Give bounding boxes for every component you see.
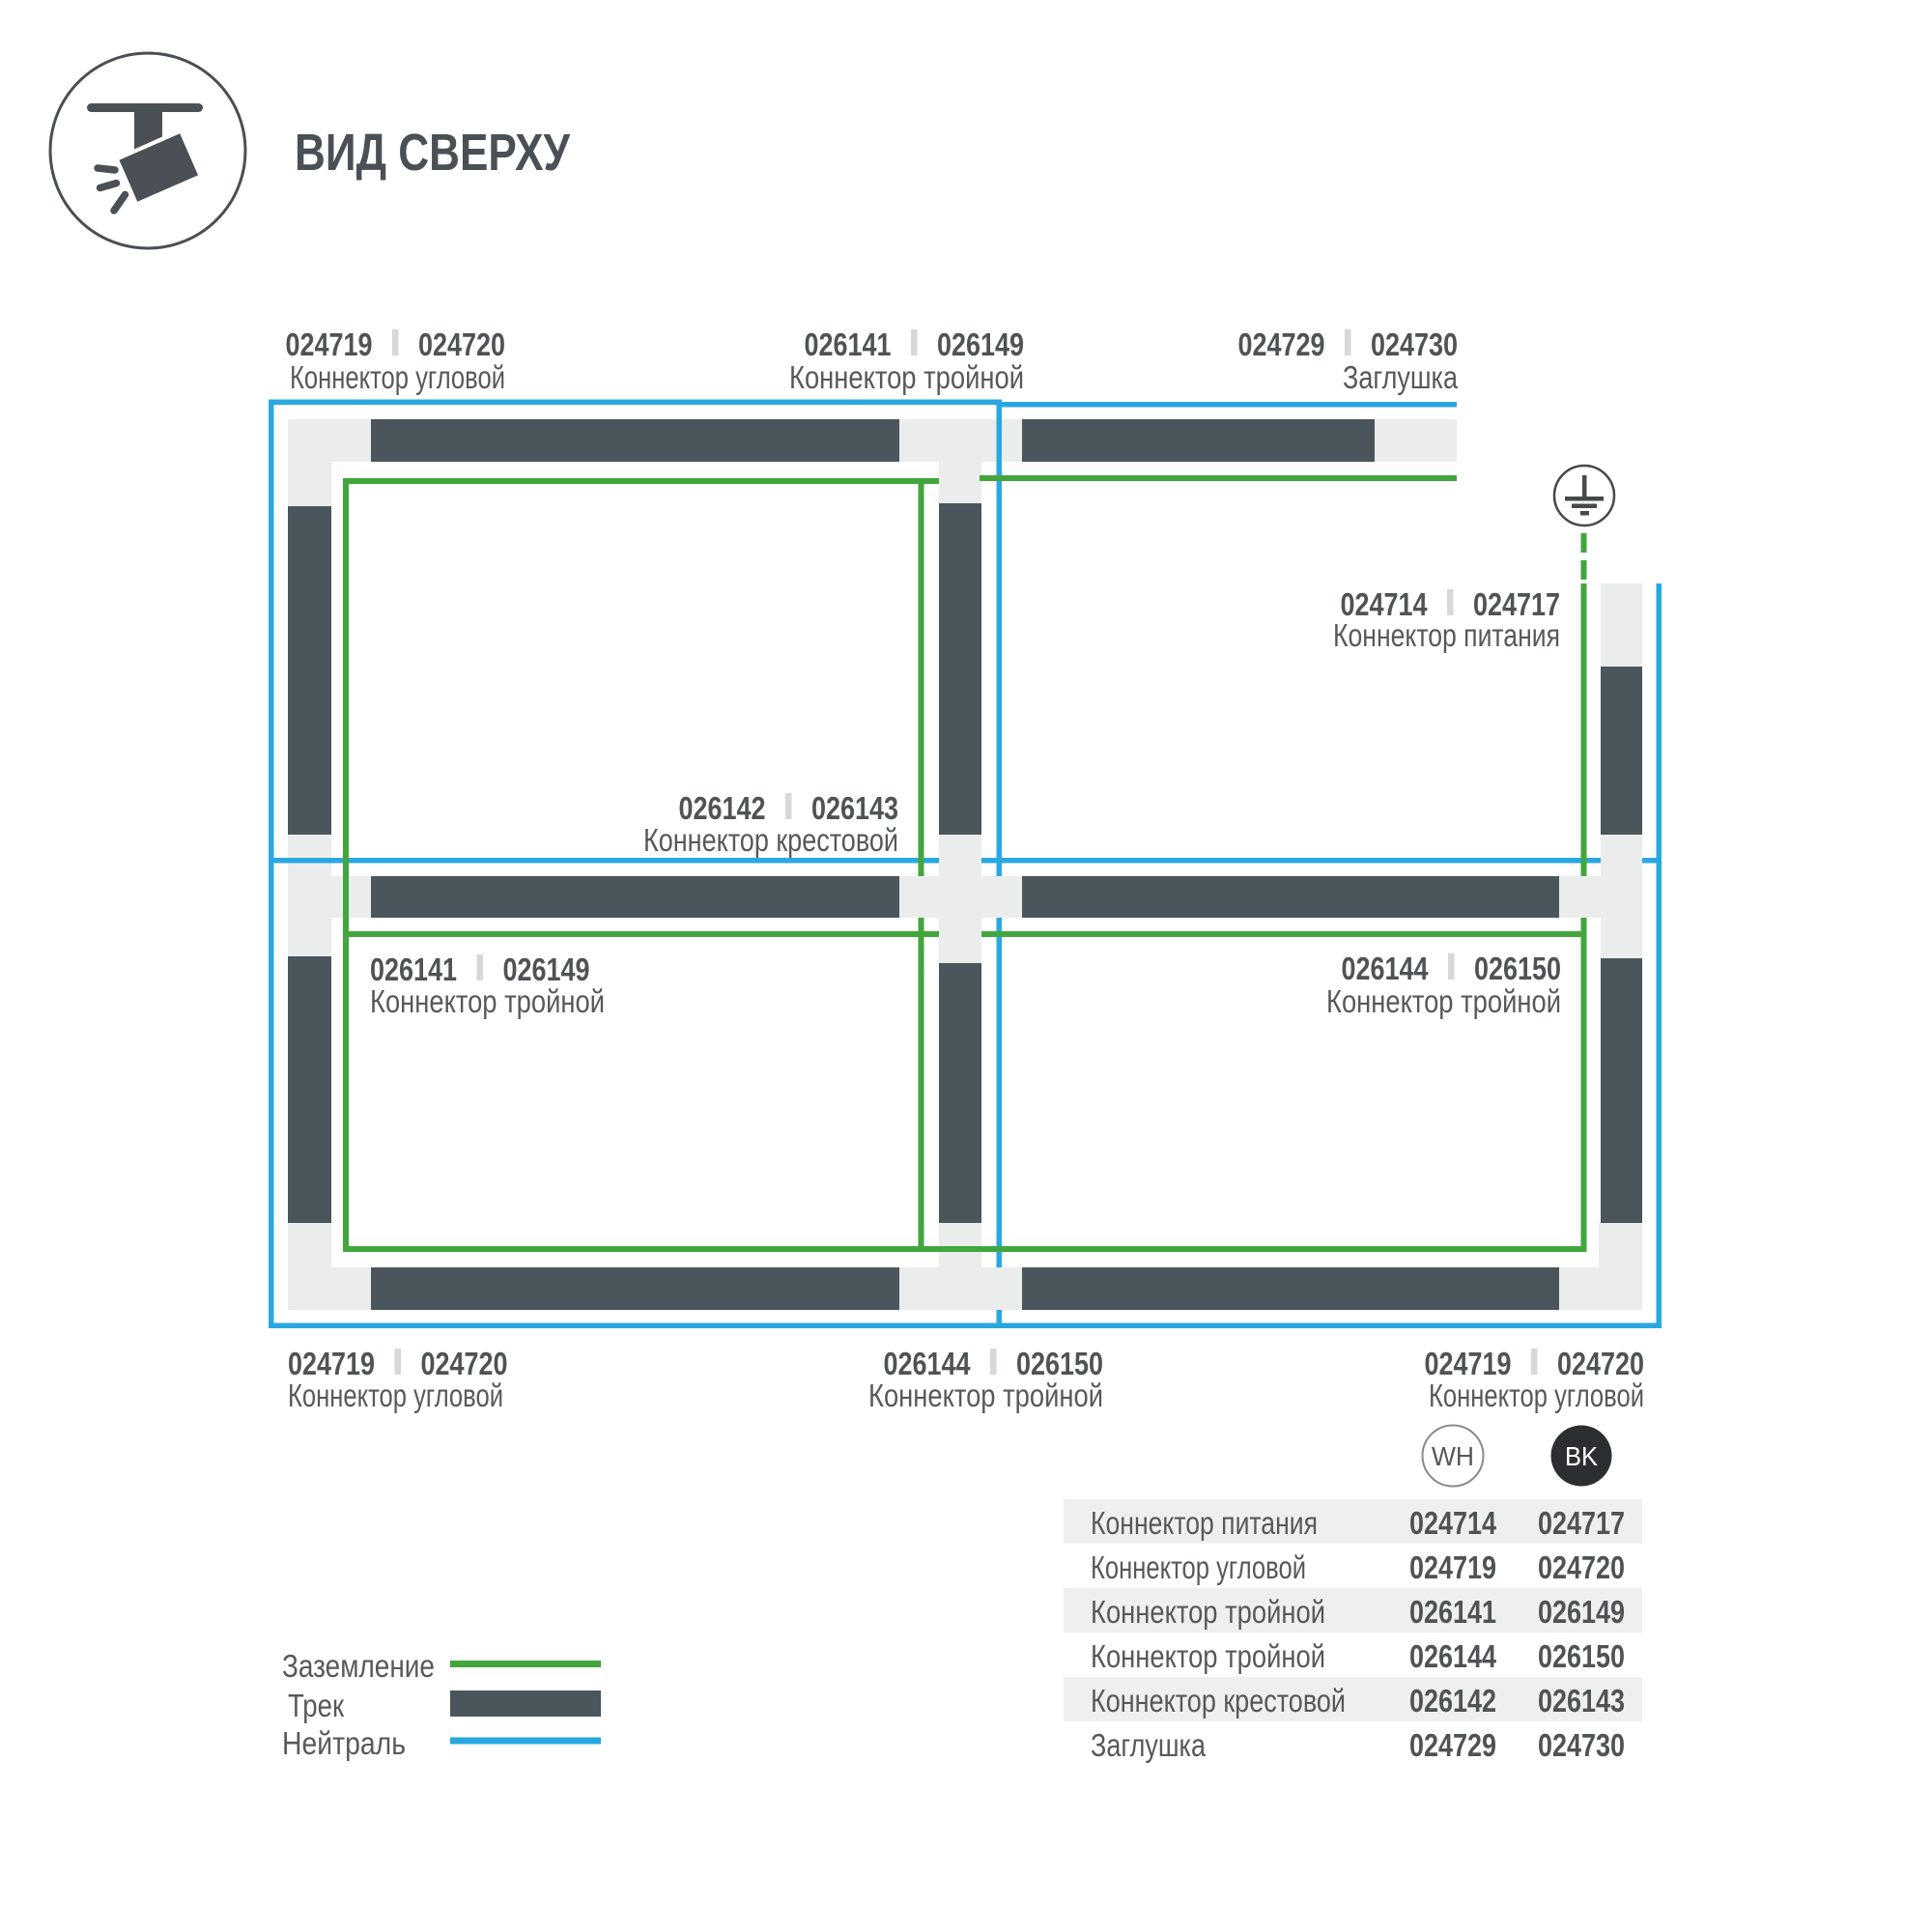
svg-text:024730: 024730 [1538, 1727, 1625, 1763]
svg-text:Коннектор угловой: Коннектор угловой [1429, 1378, 1644, 1413]
svg-text:026144: 026144 [1409, 1638, 1497, 1674]
svg-text:Коннектор тройной: Коннектор тройной [370, 983, 605, 1019]
svg-text:024720: 024720 [1538, 1549, 1625, 1585]
svg-text:Коннектор тройной: Коннектор тройной [1091, 1594, 1325, 1630]
svg-text:024719: 024719 [288, 1346, 375, 1381]
svg-text:Коннектор тройной: Коннектор тройной [1091, 1638, 1325, 1674]
svg-text:024720: 024720 [421, 1346, 508, 1381]
svg-text:026150: 026150 [1538, 1638, 1625, 1674]
svg-text:Коннектор крестовой: Коннектор крестовой [1091, 1683, 1346, 1719]
svg-text:Коннектор тройной: Коннектор тройной [1326, 983, 1561, 1019]
svg-text:026149: 026149 [503, 952, 590, 987]
svg-text:026150: 026150 [1016, 1346, 1103, 1381]
svg-text:024719: 024719 [286, 327, 373, 362]
svg-text:026142: 026142 [1409, 1683, 1496, 1719]
svg-text:026144: 026144 [1342, 951, 1430, 986]
svg-text:Коннектор питания: Коннектор питания [1333, 617, 1560, 653]
svg-text:026150: 026150 [1474, 951, 1561, 986]
svg-text:Коннектор тройной: Коннектор тройной [868, 1378, 1103, 1413]
svg-text:Коннектор угловой: Коннектор угловой [1091, 1549, 1306, 1585]
svg-text:Нейтраль: Нейтраль [282, 1725, 406, 1761]
svg-text:Трек: Трек [288, 1688, 344, 1723]
svg-text:026141: 026141 [370, 952, 457, 987]
svg-text:WH: WH [1432, 1441, 1474, 1471]
svg-text:024730: 024730 [1371, 327, 1458, 362]
svg-text:026143: 026143 [811, 790, 898, 826]
svg-text:026141: 026141 [805, 327, 892, 362]
svg-text:024720: 024720 [1557, 1346, 1644, 1381]
svg-text:024714: 024714 [1409, 1505, 1497, 1541]
svg-text:024717: 024717 [1538, 1505, 1625, 1541]
svg-text:Заземление: Заземление [282, 1648, 435, 1684]
svg-text:026143: 026143 [1538, 1683, 1625, 1719]
svg-text:026149: 026149 [937, 327, 1024, 362]
svg-text:Коннектор питания: Коннектор питания [1091, 1505, 1318, 1541]
svg-text:Заглушка: Заглушка [1091, 1727, 1207, 1763]
svg-text:ВИД СВЕРХУ: ВИД СВЕРХУ [295, 124, 571, 182]
svg-text:024720: 024720 [418, 327, 505, 362]
svg-text:Коннектор угловой: Коннектор угловой [290, 359, 505, 395]
svg-text:Коннектор крестовой: Коннектор крестовой [643, 822, 898, 858]
svg-text:026144: 026144 [884, 1346, 972, 1381]
svg-text:BK: BK [1565, 1441, 1598, 1471]
svg-text:024729: 024729 [1238, 327, 1325, 362]
svg-text:026149: 026149 [1538, 1594, 1625, 1630]
svg-text:024719: 024719 [1425, 1346, 1512, 1381]
svg-text:024729: 024729 [1409, 1727, 1496, 1763]
svg-text:Коннектор угловой: Коннектор угловой [288, 1378, 503, 1413]
svg-text:Заглушка: Заглушка [1343, 359, 1459, 395]
svg-text:026141: 026141 [1409, 1594, 1496, 1630]
svg-text:Коннектор тройной: Коннектор тройной [789, 359, 1024, 395]
svg-text:026142: 026142 [679, 790, 766, 826]
svg-text:024719: 024719 [1409, 1549, 1496, 1585]
